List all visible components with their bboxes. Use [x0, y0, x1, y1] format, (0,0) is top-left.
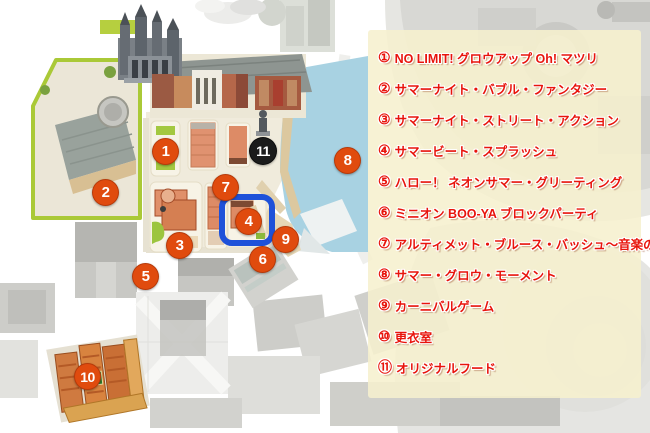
map-marker-1: 1 — [152, 138, 179, 165]
map-marker-4: 4 — [235, 208, 262, 235]
legend-item-10: ⑩更衣室 — [378, 329, 635, 343]
map-marker-7: 7 — [212, 174, 239, 201]
legend-label-7: アルティメット・ブルース・バッシュ～音楽の色～ — [395, 234, 650, 253]
map-marker-3: 3 — [166, 232, 193, 259]
legend-number-3: ③ — [378, 111, 391, 128]
legend-number-5: ⑤ — [378, 173, 391, 190]
legend-number-8: ⑧ — [378, 266, 391, 283]
legend-label-9: カーニバルゲーム — [395, 296, 495, 315]
legend-number-6: ⑥ — [378, 204, 391, 221]
legend-item-11: ⑪オリジナルフード — [378, 360, 635, 374]
map-marker-5: 5 — [132, 263, 159, 290]
legend-label-11: オリジナルフード — [396, 358, 496, 377]
legend-item-8: ⑧サマー・グロウ・モーメント — [378, 267, 635, 281]
legend-item-6: ⑥ミニオン BOO-YA ブロックパーティ — [378, 205, 635, 219]
legend-item-5: ⑤ハロー！ ネオンサマー・グリーティング — [378, 174, 635, 188]
legend-number-1: ① — [378, 49, 391, 66]
legend-label-1: NO LIMIT! グロウアップ Oh! マツリ — [395, 48, 598, 67]
legend-item-3: ③サマーナイト・ストリート・アクション — [378, 112, 635, 126]
legend-label-6: ミニオン BOO-YA ブロックパーティ — [395, 203, 599, 222]
legend-label-8: サマー・グロウ・モーメント — [395, 265, 557, 284]
theme-park-map-image: 1 2 3 4 5 6 7 8 9 10 11 ①NO LIMIT! グロウアッ… — [0, 0, 650, 433]
map-marker-11: 11 — [249, 137, 277, 165]
legend-number-10: ⑩ — [378, 328, 391, 345]
map-marker-9: 9 — [272, 226, 299, 253]
legend-item-2: ②サマーナイト・バブル・ファンタジー — [378, 81, 635, 95]
legend-label-4: サマービート・スプラッシュ — [395, 141, 558, 160]
legend-label-10: 更衣室 — [395, 327, 433, 346]
map-marker-8: 8 — [334, 147, 361, 174]
legend-item-4: ④サマービート・スプラッシュ — [378, 143, 635, 157]
map-marker-2: 2 — [92, 179, 119, 206]
legend-panel: ①NO LIMIT! グロウアップ Oh! マツリ ②サマーナイト・バブル・ファ… — [368, 30, 641, 398]
legend-label-2: サマーナイト・バブル・ファンタジー — [395, 79, 608, 98]
legend-item-9: ⑨カーニバルゲーム — [378, 298, 635, 312]
street-facades — [152, 70, 301, 110]
map-marker-10: 10 — [74, 363, 101, 390]
legend-item-1: ①NO LIMIT! グロウアップ Oh! マツリ — [378, 50, 635, 64]
legend-number-9: ⑨ — [378, 297, 391, 314]
legend-label-3: サマーナイト・ストリート・アクション — [395, 110, 619, 129]
legend-number-7: ⑦ — [378, 235, 391, 252]
legend-number-4: ④ — [378, 142, 391, 159]
legend-label-5: ハロー！ ネオンサマー・グリーティング — [395, 172, 623, 191]
map-marker-6: 6 — [249, 246, 276, 273]
legend-number-2: ② — [378, 80, 391, 97]
legend-item-7: ⑦アルティメット・ブルース・バッシュ～音楽の色～ — [378, 236, 635, 250]
legend-number-11: ⑪ — [378, 357, 392, 377]
